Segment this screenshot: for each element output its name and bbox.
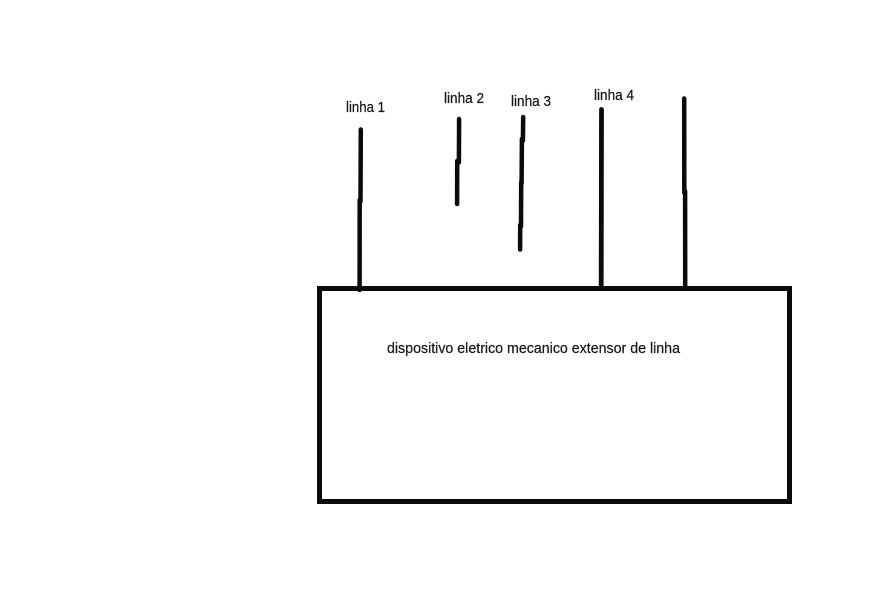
svg-text:linha 2: linha 2 <box>444 90 484 107</box>
svg-text:linha 1: linha 1 <box>346 99 385 116</box>
svg-text:linha 4: linha 4 <box>594 87 634 104</box>
svg-text:dispositivo eletrico mecanico: dispositivo eletrico mecanico extensor d… <box>387 340 681 357</box>
svg-text:linha 3: linha 3 <box>511 93 551 110</box>
